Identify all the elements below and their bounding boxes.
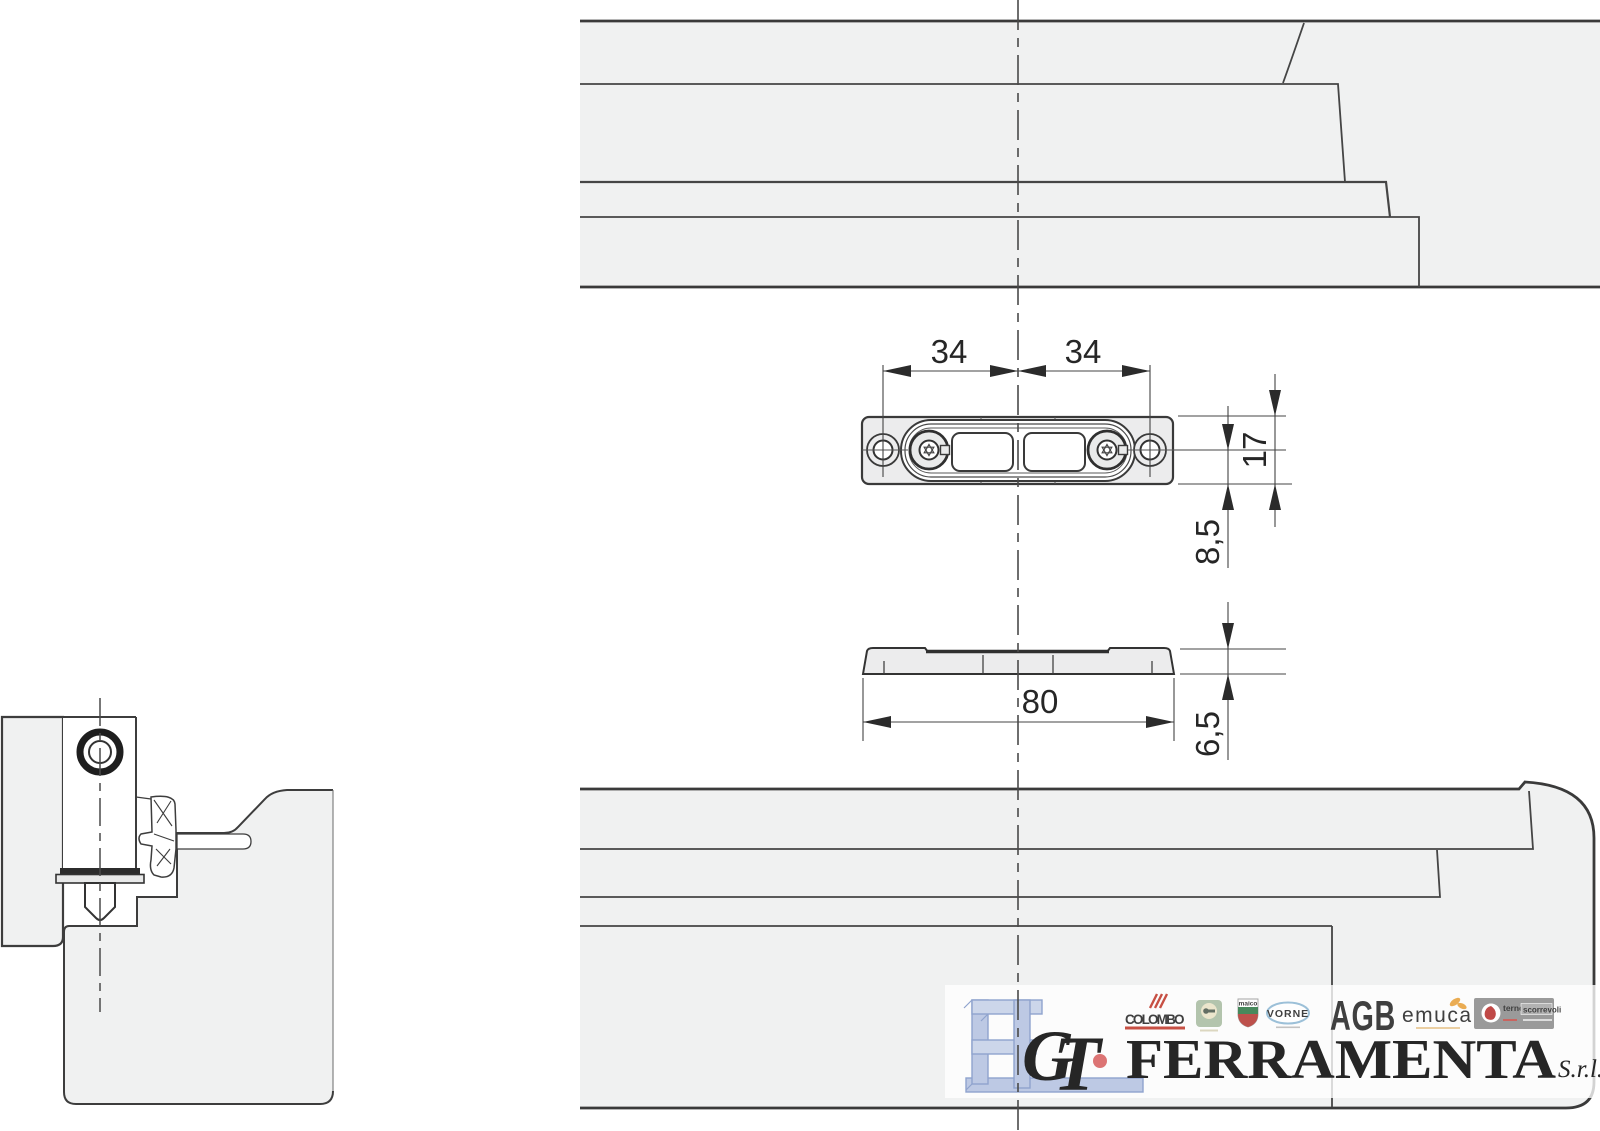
emuca-caption-bar: [1416, 1027, 1460, 1029]
watermark-company-suffix: S.r.l.: [1558, 1056, 1600, 1083]
corner-cross-section-view: [2, 698, 333, 1104]
top-profile-body: [580, 21, 1600, 287]
agb-label: AGB: [1330, 992, 1396, 1039]
green-badge-key-stem: [1208, 1010, 1215, 1013]
right-keeper-slot: [1024, 433, 1085, 471]
arrowhead-17-bottom: [1269, 484, 1281, 510]
dim-label-34-left: 34: [931, 333, 968, 370]
section-gasket-profile: [136, 796, 176, 877]
section-frame-groove: [177, 834, 251, 849]
vorne-caption-bar: [1276, 1027, 1300, 1029]
maico-label: maico: [1239, 1001, 1258, 1008]
terno-accent-bar-1: [1503, 1019, 1517, 1021]
dim-label-8-5: 8,5: [1189, 519, 1226, 565]
drawing-svg: G T FERRAMENTA S.r.l. COLOMBO: [0, 0, 1600, 1131]
agb-logo: AGB: [1330, 992, 1396, 1039]
arrowhead-80-right: [1146, 716, 1174, 728]
colombo-underline: [1125, 1027, 1185, 1030]
top-frame-profile-section: [580, 21, 1600, 287]
terno-label-2: scorrevoli: [1523, 1006, 1561, 1015]
arrowhead-6-5-top: [1222, 623, 1234, 649]
colombo-label: COLOMBO: [1125, 1012, 1185, 1027]
left-cam-tab: [941, 446, 950, 455]
dim-label-17: 17: [1236, 432, 1273, 469]
arrowhead-8-5-top: [1222, 424, 1234, 450]
right-cam-tab: [1119, 446, 1128, 455]
arrowhead-34-left-out: [883, 365, 911, 377]
green-badge-key-icon: [1203, 1008, 1209, 1014]
maico-green-band: [1238, 1007, 1258, 1014]
dim-label-34-right: 34: [1065, 333, 1102, 370]
arrowhead-17-top: [1269, 390, 1281, 416]
dim-label-6-5: 6,5: [1189, 711, 1226, 757]
watermark: G T FERRAMENTA S.r.l. COLOMBO: [945, 985, 1600, 1107]
arrowhead-80-left: [863, 716, 891, 728]
side-view-dimensions: 80 6,5: [863, 602, 1286, 760]
green-badge-caption-bar: [1200, 1030, 1218, 1032]
technical-drawing-canvas: G T FERRAMENTA S.r.l. COLOMBO: [0, 0, 1600, 1131]
dim-extension-lines-6-5: [1180, 649, 1286, 674]
green-badge-logo: [1196, 1000, 1222, 1032]
arrowhead-34-right-in: [1018, 365, 1046, 377]
monogram-top-beam: [972, 1000, 1042, 1014]
vorne-label: VORNE: [1267, 1008, 1309, 1020]
arrowhead-34-right-out: [1122, 365, 1150, 377]
arrowhead-6-5-bottom: [1222, 674, 1234, 700]
section-frame-strip: [2, 717, 63, 946]
dim-label-80: 80: [1022, 683, 1059, 720]
arrowhead-8-5-bottom: [1222, 484, 1234, 510]
sash-foot-line: [136, 797, 151, 799]
right-adjustment-cam: [1088, 431, 1128, 469]
left-keeper-slot: [952, 433, 1013, 471]
maico-shield-logo: maico: [1238, 999, 1258, 1027]
arrowhead-34-left-in: [990, 365, 1018, 377]
terno-scorrevoli-logo: terno scorrevoli: [1474, 998, 1561, 1029]
watermark-dot: [1093, 1054, 1107, 1068]
left-adjustment-cam: [910, 431, 950, 469]
terno-accent-bar-2: [1523, 1019, 1552, 1021]
